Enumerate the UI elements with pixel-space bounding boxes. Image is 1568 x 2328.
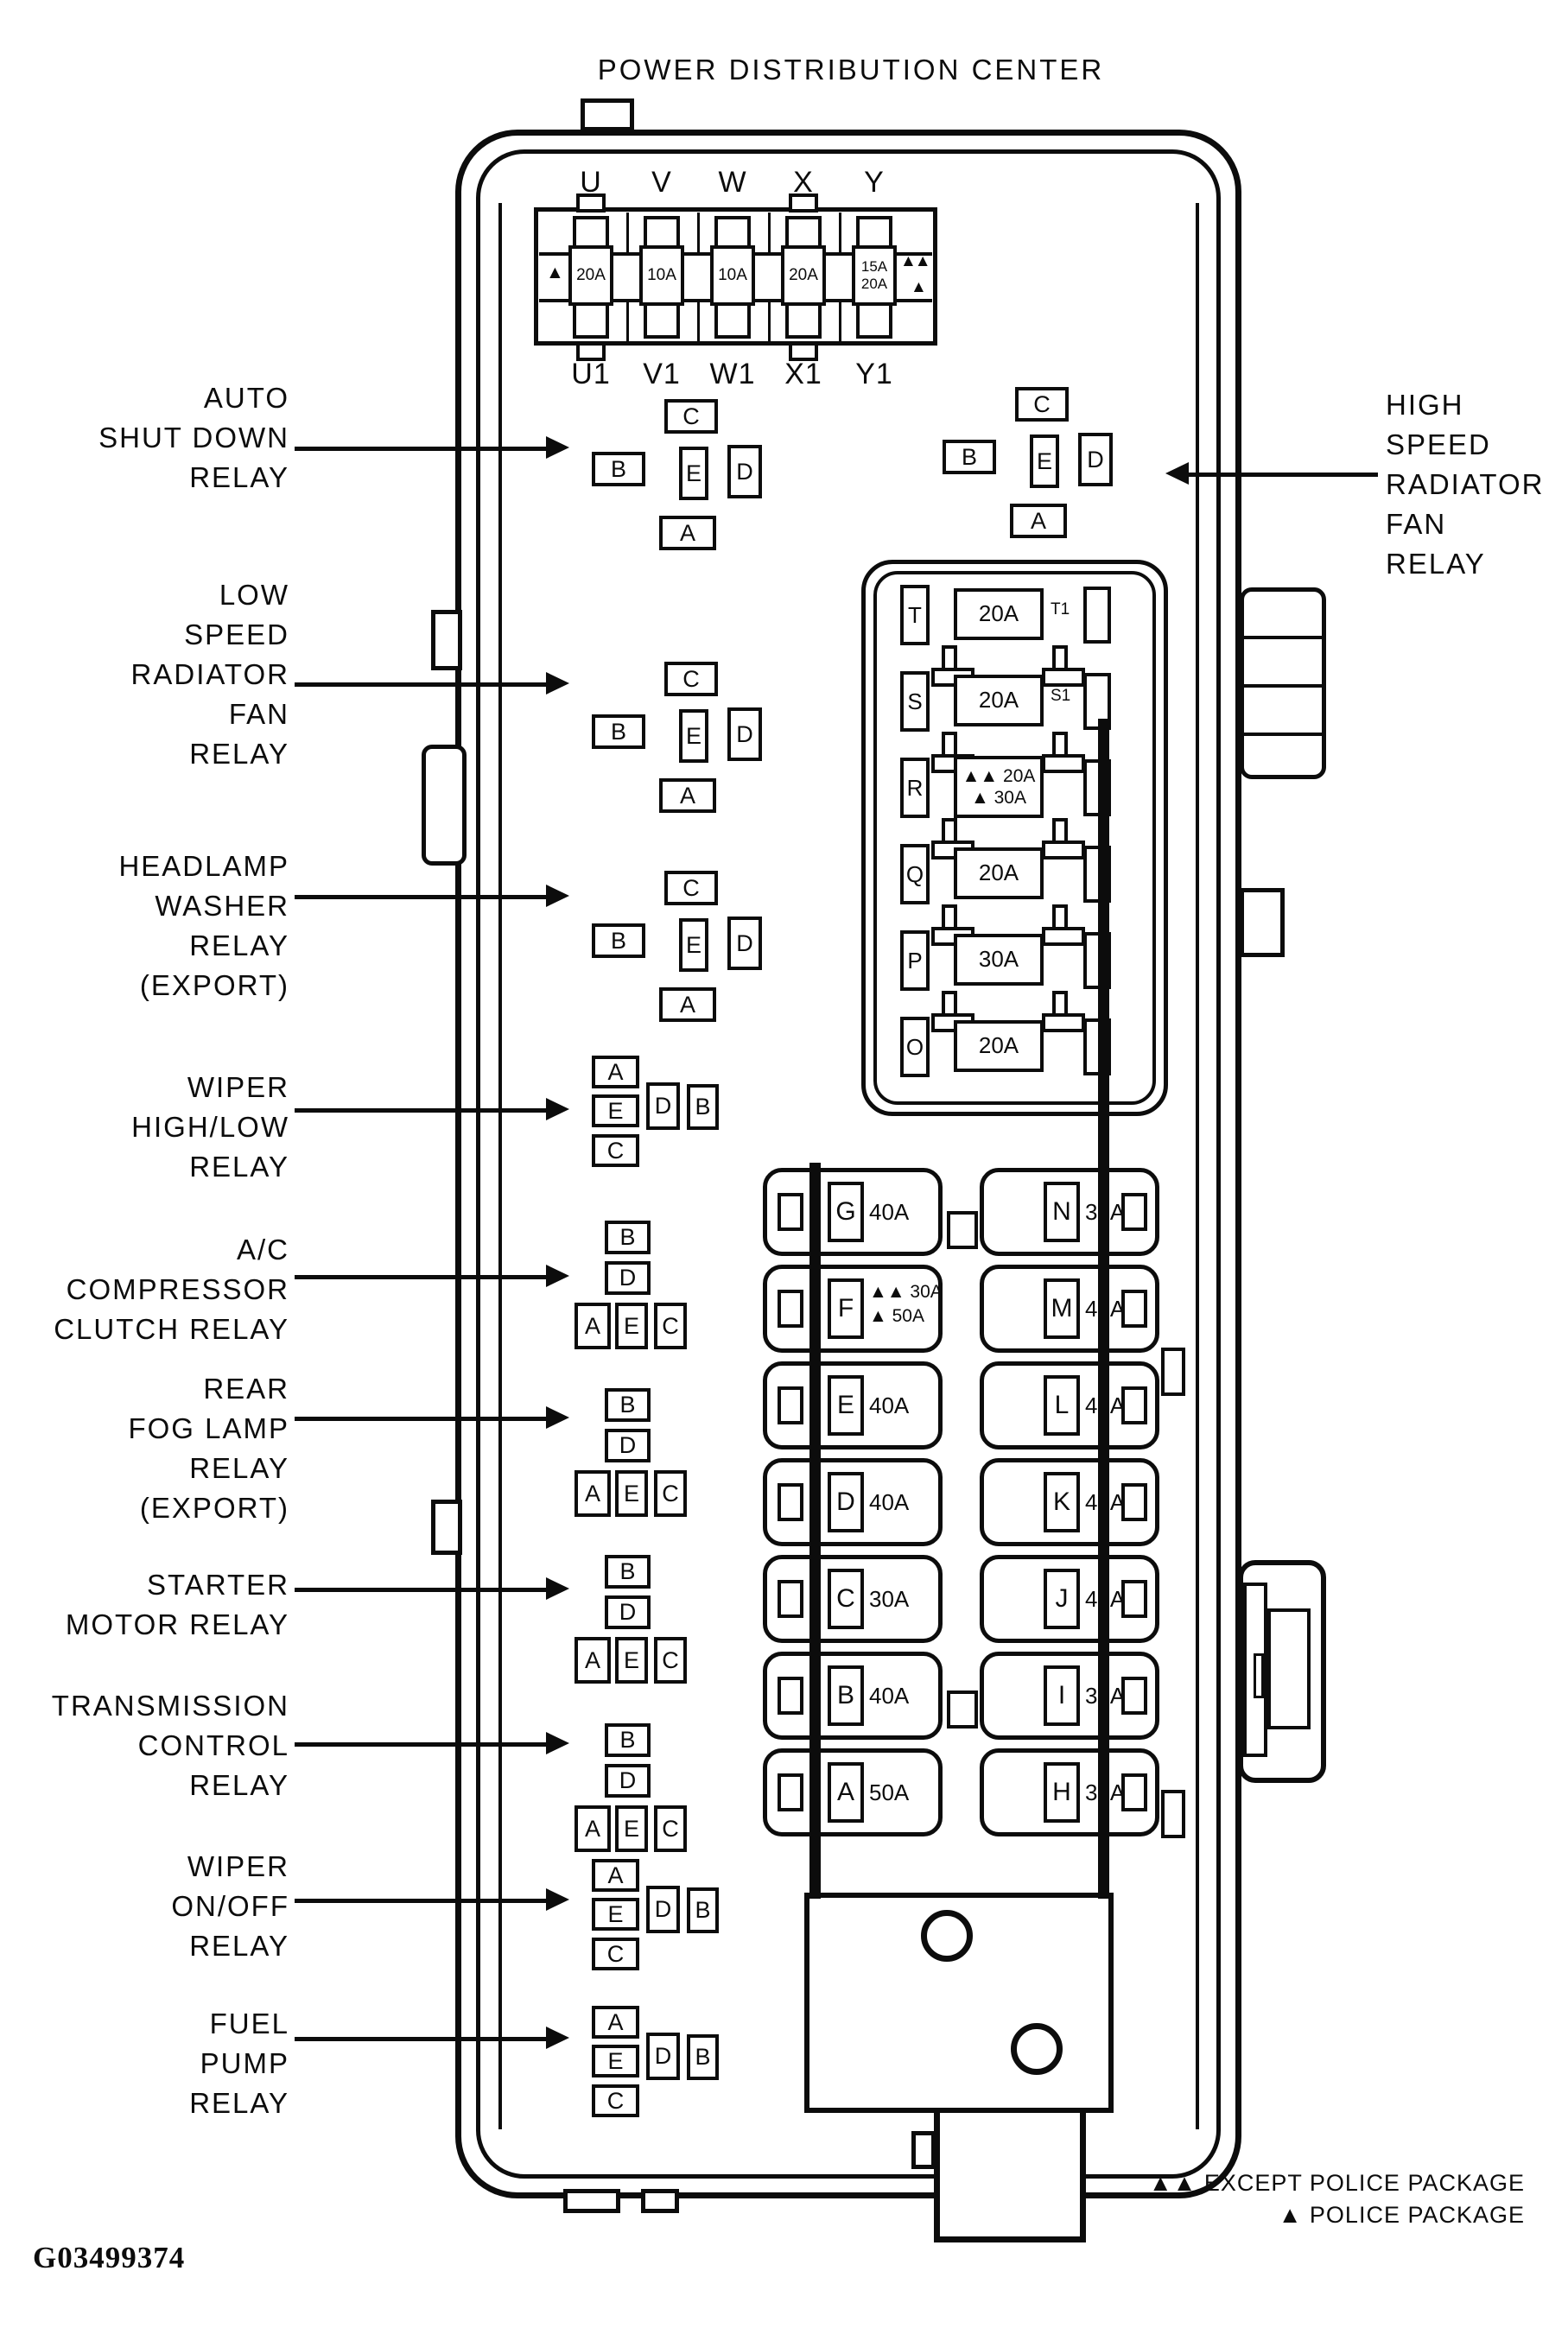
arrow-rear-fog-lamp-relay-shaft — [295, 1417, 554, 1421]
arrow-headlamp-washer-relay-shaft — [295, 895, 554, 899]
headlamp-washer-relay-socket-terminal-D: D — [727, 917, 762, 970]
maxi-fuse-J-cavity: J — [1044, 1569, 1080, 1629]
auto-shut-down-relay-socket-terminal-C: C — [664, 399, 718, 434]
label-wiper-high-low-relay-line-1: HIGH/LOW — [30, 1107, 289, 1147]
label-auto-shut-down-relay: AUTOSHUT DOWNRELAY — [30, 378, 289, 498]
high-speed-radiator-fan-relay-socket-terminal-B: B — [943, 440, 996, 474]
pdc-top-tab — [581, 98, 634, 131]
bottom-connector-step — [911, 2131, 936, 2169]
strip-terminal-bottom-2 — [714, 302, 751, 339]
label-high-speed-radiator-fan-relay-line-4: RELAY — [1386, 544, 1567, 584]
fuse-cavity-label-V: V — [627, 166, 696, 200]
arrow-starter-motor-relay-shaft — [295, 1588, 554, 1592]
wiper-on-off-relay-socket-terminal-A: A — [592, 1859, 639, 1892]
mid-link-right-bar-1 — [1042, 754, 1085, 773]
label-rear-fog-lamp-relay: REARFOG LAMPRELAY(EXPORT) — [30, 1369, 289, 1528]
label-fuel-pump-relay-line-0: FUEL — [30, 2004, 289, 2044]
maxi-fuse-B-amp-0: 40A — [869, 1681, 949, 1711]
label-transmission-control-relay-line-1: CONTROL — [30, 1726, 289, 1766]
mid-fuse-S: 20A — [954, 675, 1044, 726]
label-transmission-control-relay-line-0: TRANSMISSION — [30, 1686, 289, 1726]
top-fuse-U-marker: ▲ — [546, 263, 564, 283]
bottom-edge-tab-2 — [641, 2189, 679, 2213]
mid-fuse-T-cavity: T — [900, 585, 930, 645]
label-rear-fog-lamp-relay-line-1: FOG LAMP — [30, 1409, 289, 1449]
strip-bottom-tab-3 — [789, 342, 818, 361]
top-fuse-X: 20A — [781, 245, 826, 306]
left-edge-tab-2 — [422, 745, 467, 866]
label-high-speed-radiator-fan-relay-line-0: HIGH — [1386, 385, 1567, 425]
strip-terminal-bottom-4 — [856, 302, 892, 339]
arrow-starter-motor-relay-head — [546, 1577, 569, 1600]
low-speed-radiator-fan-relay-socket-terminal-A: A — [659, 778, 716, 813]
wiper-on-off-relay-socket-terminal-D: D — [646, 1886, 680, 1933]
label-headlamp-washer-relay-line-3: (EXPORT) — [30, 966, 289, 1005]
label-transmission-control-relay: TRANSMISSIONCONTROLRELAY — [30, 1686, 289, 1805]
strip-divider-top-1 — [697, 213, 700, 252]
top-fuse-V-amp-0: 10A — [647, 266, 676, 285]
low-speed-radiator-fan-relay-socket-terminal-C: C — [664, 662, 718, 696]
arrow-wiper-on-off-relay-shaft — [295, 1899, 554, 1903]
maxi-fuse-A-amp-0: 50A — [869, 1778, 949, 1808]
maxi-fuse-M-cavity: M — [1044, 1278, 1080, 1339]
grid-right-tab-1 — [1161, 1348, 1185, 1396]
arrow-wiper-high-low-relay-head — [546, 1098, 569, 1120]
mid-fuse-O-cavity: O — [900, 1017, 930, 1077]
fuse-cavity-label-Y1: Y1 — [835, 358, 913, 391]
maxi-fuse-A-amps: 50A — [869, 1778, 949, 1808]
label-wiper-high-low-relay: WIPERHIGH/LOWRELAY — [30, 1068, 289, 1187]
maxi-fuse-I-terminal — [1121, 1677, 1147, 1715]
arrow-fuel-pump-relay-head — [546, 2027, 569, 2049]
starter-motor-relay-socket-terminal-C: C — [654, 1637, 687, 1684]
mid-fuse-T-alt-label: T1 — [1051, 600, 1070, 619]
strip-divider-bottom-1 — [697, 302, 700, 342]
label-starter-motor-relay: STARTERMOTOR RELAY — [30, 1565, 289, 1645]
maxi-fuse-F-cavity: F — [828, 1278, 864, 1339]
mid-fuse-T-amp-0: 20A — [979, 600, 1019, 627]
maxi-fuse-N-cavity: N — [1044, 1182, 1080, 1242]
arrow-rear-fog-lamp-relay-head — [546, 1406, 569, 1429]
maxi-fuse-F-amp-1: ▲ 50A — [869, 1304, 949, 1329]
transmission-control-relay-socket-terminal-D: D — [605, 1764, 651, 1798]
headlamp-washer-relay-socket-terminal-C: C — [664, 871, 718, 905]
headlamp-washer-relay-socket-terminal-A: A — [659, 987, 716, 1022]
maxi-fuse-G-terminal — [778, 1193, 803, 1231]
maxi-fuse-A-cavity: A — [828, 1762, 864, 1823]
legend-item-1: ▲ POLICE PACKAGE — [1024, 2202, 1525, 2229]
label-wiper-on-off-relay-line-2: RELAY — [30, 1926, 289, 1966]
fuse-cavity-label-W1: W1 — [694, 358, 771, 391]
maxi-fuse-C-terminal — [778, 1580, 803, 1618]
label-low-speed-radiator-fan-relay-line-4: RELAY — [30, 734, 289, 774]
maxi-fuse-K-cavity: K — [1044, 1472, 1080, 1532]
maxi-fuse-M-terminal — [1121, 1290, 1147, 1328]
top-fuse-U: 20A — [568, 245, 613, 306]
mid-fuse-Q-amp-0: 20A — [979, 860, 1019, 886]
strip-terminal-bottom-0 — [573, 302, 609, 339]
mid-fuse-R-cavity: R — [900, 758, 930, 818]
mid-fuse-Q-cavity: Q — [900, 844, 930, 904]
mid-link-right-bar-3 — [1042, 927, 1085, 946]
label-ac-compressor-clutch-relay: A/CCOMPRESSORCLUTCH RELAY — [30, 1230, 289, 1349]
fuse-cavity-label-U1: U1 — [552, 358, 630, 391]
label-high-speed-radiator-fan-relay-line-2: RADIATOR — [1386, 465, 1567, 504]
ac-compressor-clutch-relay-socket-terminal-B: B — [605, 1221, 651, 1254]
arrow-fuel-pump-relay-shaft — [295, 2037, 554, 2041]
label-auto-shut-down-relay-line-1: SHUT DOWN — [30, 418, 289, 458]
mid-link-right-bar-0 — [1042, 668, 1085, 687]
maxi-fuse-E-cavity: E — [828, 1375, 864, 1436]
top-fuse-X-amp-0: 20A — [789, 266, 818, 285]
label-wiper-on-off-relay-line-1: ON/OFF — [30, 1887, 289, 1926]
strip-divider-top-2 — [768, 213, 771, 252]
maxi-fuse-F-terminal — [778, 1290, 803, 1328]
maxi-fuse-F-amps: ▲▲ 30A▲ 50A — [869, 1280, 949, 1329]
maxi-fuse-D-amp-0: 40A — [869, 1488, 949, 1518]
wiper-on-off-relay-socket-terminal-B: B — [687, 1887, 719, 1933]
maxi-fuse-N-terminal — [1121, 1193, 1147, 1231]
maxi-fuse-G-amps: 40A — [869, 1197, 949, 1227]
high-speed-radiator-fan-relay-socket-terminal-A: A — [1010, 504, 1067, 538]
arrow-high-speed-radiator-fan-relay-head — [1165, 462, 1189, 485]
label-high-speed-radiator-fan-relay: HIGHSPEEDRADIATORFANRELAY — [1386, 385, 1567, 584]
label-low-speed-radiator-fan-relay: LOWSPEEDRADIATORFANRELAY — [30, 575, 289, 774]
top-fuse-W-amp-0: 10A — [718, 266, 747, 285]
fuse-cavity-label-W: W — [698, 166, 767, 200]
rear-fog-lamp-relay-socket-terminal-C: C — [654, 1470, 687, 1517]
label-wiper-high-low-relay-line-0: WIPER — [30, 1068, 289, 1107]
transmission-control-relay-socket-terminal-E: E — [615, 1805, 648, 1852]
maxi-fuse-D-terminal — [778, 1483, 803, 1521]
power-distribution-center-diagram: POWER DISTRIBUTION CENTER G03499374 UU12… — [0, 0, 1568, 2328]
maxi-fuse-L-cavity: L — [1044, 1375, 1080, 1436]
maxi-fuse-E-amp-0: 40A — [869, 1391, 949, 1421]
top-fuse-Y-marker-1: ▲ — [911, 278, 927, 297]
maxi-fuse-H-terminal — [1121, 1773, 1147, 1811]
wiper-high-low-relay-socket-terminal-C: C — [592, 1134, 639, 1167]
starter-motor-relay-socket-terminal-D: D — [605, 1595, 651, 1629]
pdc-case-wall-right — [1196, 203, 1199, 2129]
top-fuse-W: 10A — [710, 245, 755, 306]
starter-motor-relay-socket-terminal-E: E — [615, 1637, 648, 1684]
mid-link-right-bar-2 — [1042, 840, 1085, 860]
label-fuel-pump-relay: FUELPUMPRELAY — [30, 2004, 289, 2123]
label-headlamp-washer-relay-line-0: HEADLAMP — [30, 847, 289, 886]
high-speed-radiator-fan-relay-socket-terminal-C: C — [1015, 387, 1069, 422]
page-title: POWER DISTRIBUTION CENTER — [549, 54, 1153, 86]
strip-terminal-bottom-3 — [785, 302, 822, 339]
mid-fuse-P-cavity: P — [900, 930, 930, 991]
rear-fog-lamp-relay-socket-terminal-A: A — [575, 1470, 611, 1517]
arrow-wiper-high-low-relay-shaft — [295, 1108, 554, 1113]
ac-compressor-clutch-relay-socket-terminal-D: D — [605, 1261, 651, 1295]
top-fuse-Y: 15A20A — [852, 245, 897, 306]
wiper-on-off-relay-socket-terminal-E: E — [592, 1898, 639, 1931]
bottom-edge-tab-1 — [563, 2189, 620, 2213]
label-high-speed-radiator-fan-relay-line-3: FAN — [1386, 504, 1567, 544]
arrow-transmission-control-relay-head — [546, 1732, 569, 1754]
label-low-speed-radiator-fan-relay-line-1: SPEED — [30, 615, 289, 655]
right-connector-lower-inner-3 — [1254, 1653, 1264, 1698]
maxi-fuse-L-terminal — [1121, 1386, 1147, 1424]
mid-fuse-R-amp-1: ▲ 30A — [971, 787, 1026, 809]
label-fuel-pump-relay-line-1: PUMP — [30, 2044, 289, 2084]
maxi-fuse-E-terminal — [778, 1386, 803, 1424]
label-wiper-on-off-relay-line-0: WIPER — [30, 1847, 289, 1887]
wiper-on-off-relay-socket-terminal-C: C — [592, 1938, 639, 1970]
label-headlamp-washer-relay-line-1: WASHER — [30, 886, 289, 926]
strip-top-tab-3 — [789, 193, 818, 213]
strip-divider-top-0 — [626, 213, 629, 252]
headlamp-washer-relay-socket-terminal-B: B — [592, 923, 645, 958]
auto-shut-down-relay-socket-terminal-E: E — [679, 447, 708, 500]
label-headlamp-washer-relay: HEADLAMPWASHERRELAY(EXPORT) — [30, 847, 289, 1005]
starter-motor-relay-socket-terminal-A: A — [575, 1637, 611, 1684]
fuel-pump-relay-socket-terminal-B: B — [687, 2034, 719, 2080]
mid-fuse-P: 30A — [954, 934, 1044, 986]
fuse-cavity-label-X1: X1 — [765, 358, 842, 391]
top-fuse-Y-amp-0: 15A — [861, 258, 887, 276]
maxi-fuse-C-amps: 30A — [869, 1584, 949, 1614]
bus-line-left-over — [809, 1163, 821, 1899]
strip-divider-bottom-3 — [839, 302, 841, 342]
maxi-fuse-C-amp-0: 30A — [869, 1584, 949, 1614]
label-low-speed-radiator-fan-relay-line-3: FAN — [30, 695, 289, 734]
wiper-high-low-relay-socket-terminal-E: E — [592, 1094, 639, 1127]
starter-motor-relay-socket-terminal-B: B — [605, 1555, 651, 1589]
arrow-low-speed-radiator-fan-relay-shaft — [295, 682, 554, 687]
low-speed-radiator-fan-relay-socket-terminal-D: D — [727, 707, 762, 761]
label-rear-fog-lamp-relay-line-2: RELAY — [30, 1449, 289, 1488]
wiper-high-low-relay-socket-terminal-B: B — [687, 1084, 719, 1130]
auto-shut-down-relay-socket-terminal-A: A — [659, 516, 716, 550]
arrow-headlamp-washer-relay-head — [546, 885, 569, 907]
fuse-cavity-label-V1: V1 — [623, 358, 701, 391]
transmission-control-relay-socket-terminal-B: B — [605, 1723, 651, 1757]
label-fuel-pump-relay-line-2: RELAY — [30, 2084, 289, 2123]
maxi-fuse-K-terminal — [1121, 1483, 1147, 1521]
label-wiper-high-low-relay-line-2: RELAY — [30, 1147, 289, 1187]
right-connector-upper-slat-1 — [1244, 636, 1322, 639]
rear-fog-lamp-relay-socket-terminal-B: B — [605, 1388, 651, 1422]
high-speed-radiator-fan-relay-socket-terminal-E: E — [1030, 435, 1059, 488]
figure-id: G03499374 — [33, 2241, 185, 2275]
auto-shut-down-relay-socket-terminal-B: B — [592, 452, 645, 486]
strip-divider-top-3 — [839, 213, 841, 252]
arrow-low-speed-radiator-fan-relay-head — [546, 672, 569, 695]
mid-fuse-T: 20A — [954, 588, 1044, 640]
maxi-fuse-I-cavity: I — [1044, 1665, 1080, 1726]
fuel-pump-relay-socket-terminal-E: E — [592, 2045, 639, 2077]
transmission-control-relay-socket-terminal-A: A — [575, 1805, 611, 1852]
maxi-fuse-F-amp-0: ▲▲ 30A — [869, 1280, 949, 1304]
right-connector-upper — [1240, 587, 1326, 779]
maxi-fuse-E-amps: 40A — [869, 1391, 949, 1421]
ac-compressor-clutch-relay-socket-terminal-E: E — [615, 1303, 648, 1349]
label-transmission-control-relay-line-2: RELAY — [30, 1766, 289, 1805]
auto-shut-down-relay-socket-terminal-D: D — [727, 445, 762, 498]
label-rear-fog-lamp-relay-line-0: REAR — [30, 1369, 289, 1409]
label-ac-compressor-clutch-relay-line-2: CLUTCH RELAY — [30, 1310, 289, 1349]
maxi-fuse-C-cavity: C — [828, 1569, 864, 1629]
fuel-pump-relay-socket-terminal-D: D — [646, 2033, 680, 2080]
legend-item-0: ▲▲ EXCEPT POLICE PACKAGE — [1024, 2170, 1525, 2197]
wiper-high-low-relay-socket-terminal-A: A — [592, 1056, 639, 1088]
label-starter-motor-relay-line-0: STARTER — [30, 1565, 289, 1605]
fuse-cavity-label-Y: Y — [840, 166, 909, 200]
arrow-ac-compressor-clutch-relay-shaft — [295, 1275, 554, 1279]
mid-fuse-Q: 20A — [954, 847, 1044, 899]
headlamp-washer-relay-socket-terminal-E: E — [679, 918, 708, 972]
maxi-fuse-B-cavity: B — [828, 1665, 864, 1726]
right-connector-upper-slat-3 — [1244, 733, 1322, 736]
arrow-wiper-on-off-relay-head — [546, 1888, 569, 1911]
strip-bottom-tab-0 — [576, 342, 606, 361]
arrow-auto-shut-down-relay-head — [546, 436, 569, 459]
maxi-fuse-J-terminal — [1121, 1580, 1147, 1618]
fuel-pump-relay-socket-terminal-C: C — [592, 2084, 639, 2117]
maxi-fuse-D-amps: 40A — [869, 1488, 949, 1518]
rear-fog-lamp-relay-socket-terminal-E: E — [615, 1470, 648, 1517]
maxi-fuse-D-cavity: D — [828, 1472, 864, 1532]
label-rear-fog-lamp-relay-line-3: (EXPORT) — [30, 1488, 289, 1528]
arrow-auto-shut-down-relay-shaft — [295, 447, 554, 451]
label-ac-compressor-clutch-relay-line-1: COMPRESSOR — [30, 1270, 289, 1310]
label-ac-compressor-clutch-relay-line-0: A/C — [30, 1230, 289, 1270]
label-low-speed-radiator-fan-relay-line-0: LOW — [30, 575, 289, 615]
arrow-high-speed-radiator-fan-relay-shaft — [1188, 473, 1378, 477]
mid-link-right-bar-4 — [1042, 1013, 1085, 1032]
maxi-fuse-G-cavity: G — [828, 1182, 864, 1242]
maxi-fuse-A-terminal — [778, 1773, 803, 1811]
mid-fuse-O-amp-0: 20A — [979, 1032, 1019, 1059]
top-fuse-Y-amp-1: 20A — [861, 276, 887, 293]
label-starter-motor-relay-line-1: MOTOR RELAY — [30, 1605, 289, 1645]
label-auto-shut-down-relay-line-0: AUTO — [30, 378, 289, 418]
low-speed-radiator-fan-relay-socket-terminal-E: E — [679, 709, 708, 763]
arrow-transmission-control-relay-shaft — [295, 1742, 554, 1747]
strip-terminal-bottom-1 — [644, 302, 680, 339]
right-connector-upper-slat-2 — [1244, 684, 1322, 688]
mid-fuse-O: 20A — [954, 1020, 1044, 1072]
strip-top-tab-0 — [576, 193, 606, 213]
left-edge-tab-1 — [431, 610, 462, 670]
mid-fuse-P-amp-0: 30A — [979, 946, 1019, 973]
transmission-control-relay-socket-terminal-C: C — [654, 1805, 687, 1852]
grid-gap-tab-1 — [947, 1211, 978, 1249]
low-speed-radiator-fan-relay-socket-terminal-B: B — [592, 714, 645, 749]
grid-right-tab-2 — [1161, 1790, 1185, 1838]
right-edge-tab — [1240, 888, 1285, 957]
top-fuse-U-amp-0: 20A — [576, 266, 606, 285]
label-wiper-on-off-relay: WIPERON/OFFRELAY — [30, 1847, 289, 1966]
label-headlamp-washer-relay-line-2: RELAY — [30, 926, 289, 966]
mid-fuse-R: ▲▲ 20A▲ 30A — [954, 756, 1044, 818]
maxi-fuse-H-cavity: H — [1044, 1762, 1080, 1823]
ac-compressor-clutch-relay-socket-terminal-C: C — [654, 1303, 687, 1349]
ac-compressor-clutch-relay-socket-terminal-A: A — [575, 1303, 611, 1349]
left-edge-tab-3 — [431, 1500, 462, 1555]
label-low-speed-radiator-fan-relay-line-2: RADIATOR — [30, 655, 289, 695]
wiper-high-low-relay-socket-terminal-D: D — [646, 1082, 680, 1130]
grid-gap-tab-2 — [947, 1690, 978, 1729]
right-connector-lower-inner-2 — [1267, 1608, 1311, 1729]
strip-divider-bottom-2 — [768, 302, 771, 342]
bus-line-right-over — [1098, 719, 1109, 1899]
mid-fuse-S-amp-0: 20A — [979, 687, 1019, 714]
mid-fuse-T-terminal — [1083, 587, 1111, 644]
maxi-fuse-B-amps: 40A — [869, 1681, 949, 1711]
rear-fog-lamp-relay-socket-terminal-D: D — [605, 1429, 651, 1462]
label-auto-shut-down-relay-line-2: RELAY — [30, 458, 289, 498]
top-fuse-V: 10A — [639, 245, 684, 306]
arrow-ac-compressor-clutch-relay-head — [546, 1265, 569, 1287]
label-high-speed-radiator-fan-relay-line-1: SPEED — [1386, 425, 1567, 465]
bottom-mount-hole-1 — [921, 1910, 973, 1962]
mid-fuse-R-amp-0: ▲▲ 20A — [962, 765, 1036, 787]
high-speed-radiator-fan-relay-socket-terminal-D: D — [1078, 433, 1113, 486]
pdc-case-wall-left — [498, 203, 502, 2129]
maxi-fuse-B-terminal — [778, 1677, 803, 1715]
maxi-fuse-G-amp-0: 40A — [869, 1197, 949, 1227]
mid-fuse-S-alt-label: S1 — [1051, 687, 1070, 706]
mid-fuse-S-cavity: S — [900, 671, 930, 732]
fuel-pump-relay-socket-terminal-A: A — [592, 2006, 639, 2039]
bottom-mount-hole-2 — [1011, 2023, 1063, 2075]
strip-divider-bottom-0 — [626, 302, 629, 342]
top-fuse-Y-marker-0: ▲▲ — [900, 252, 930, 271]
